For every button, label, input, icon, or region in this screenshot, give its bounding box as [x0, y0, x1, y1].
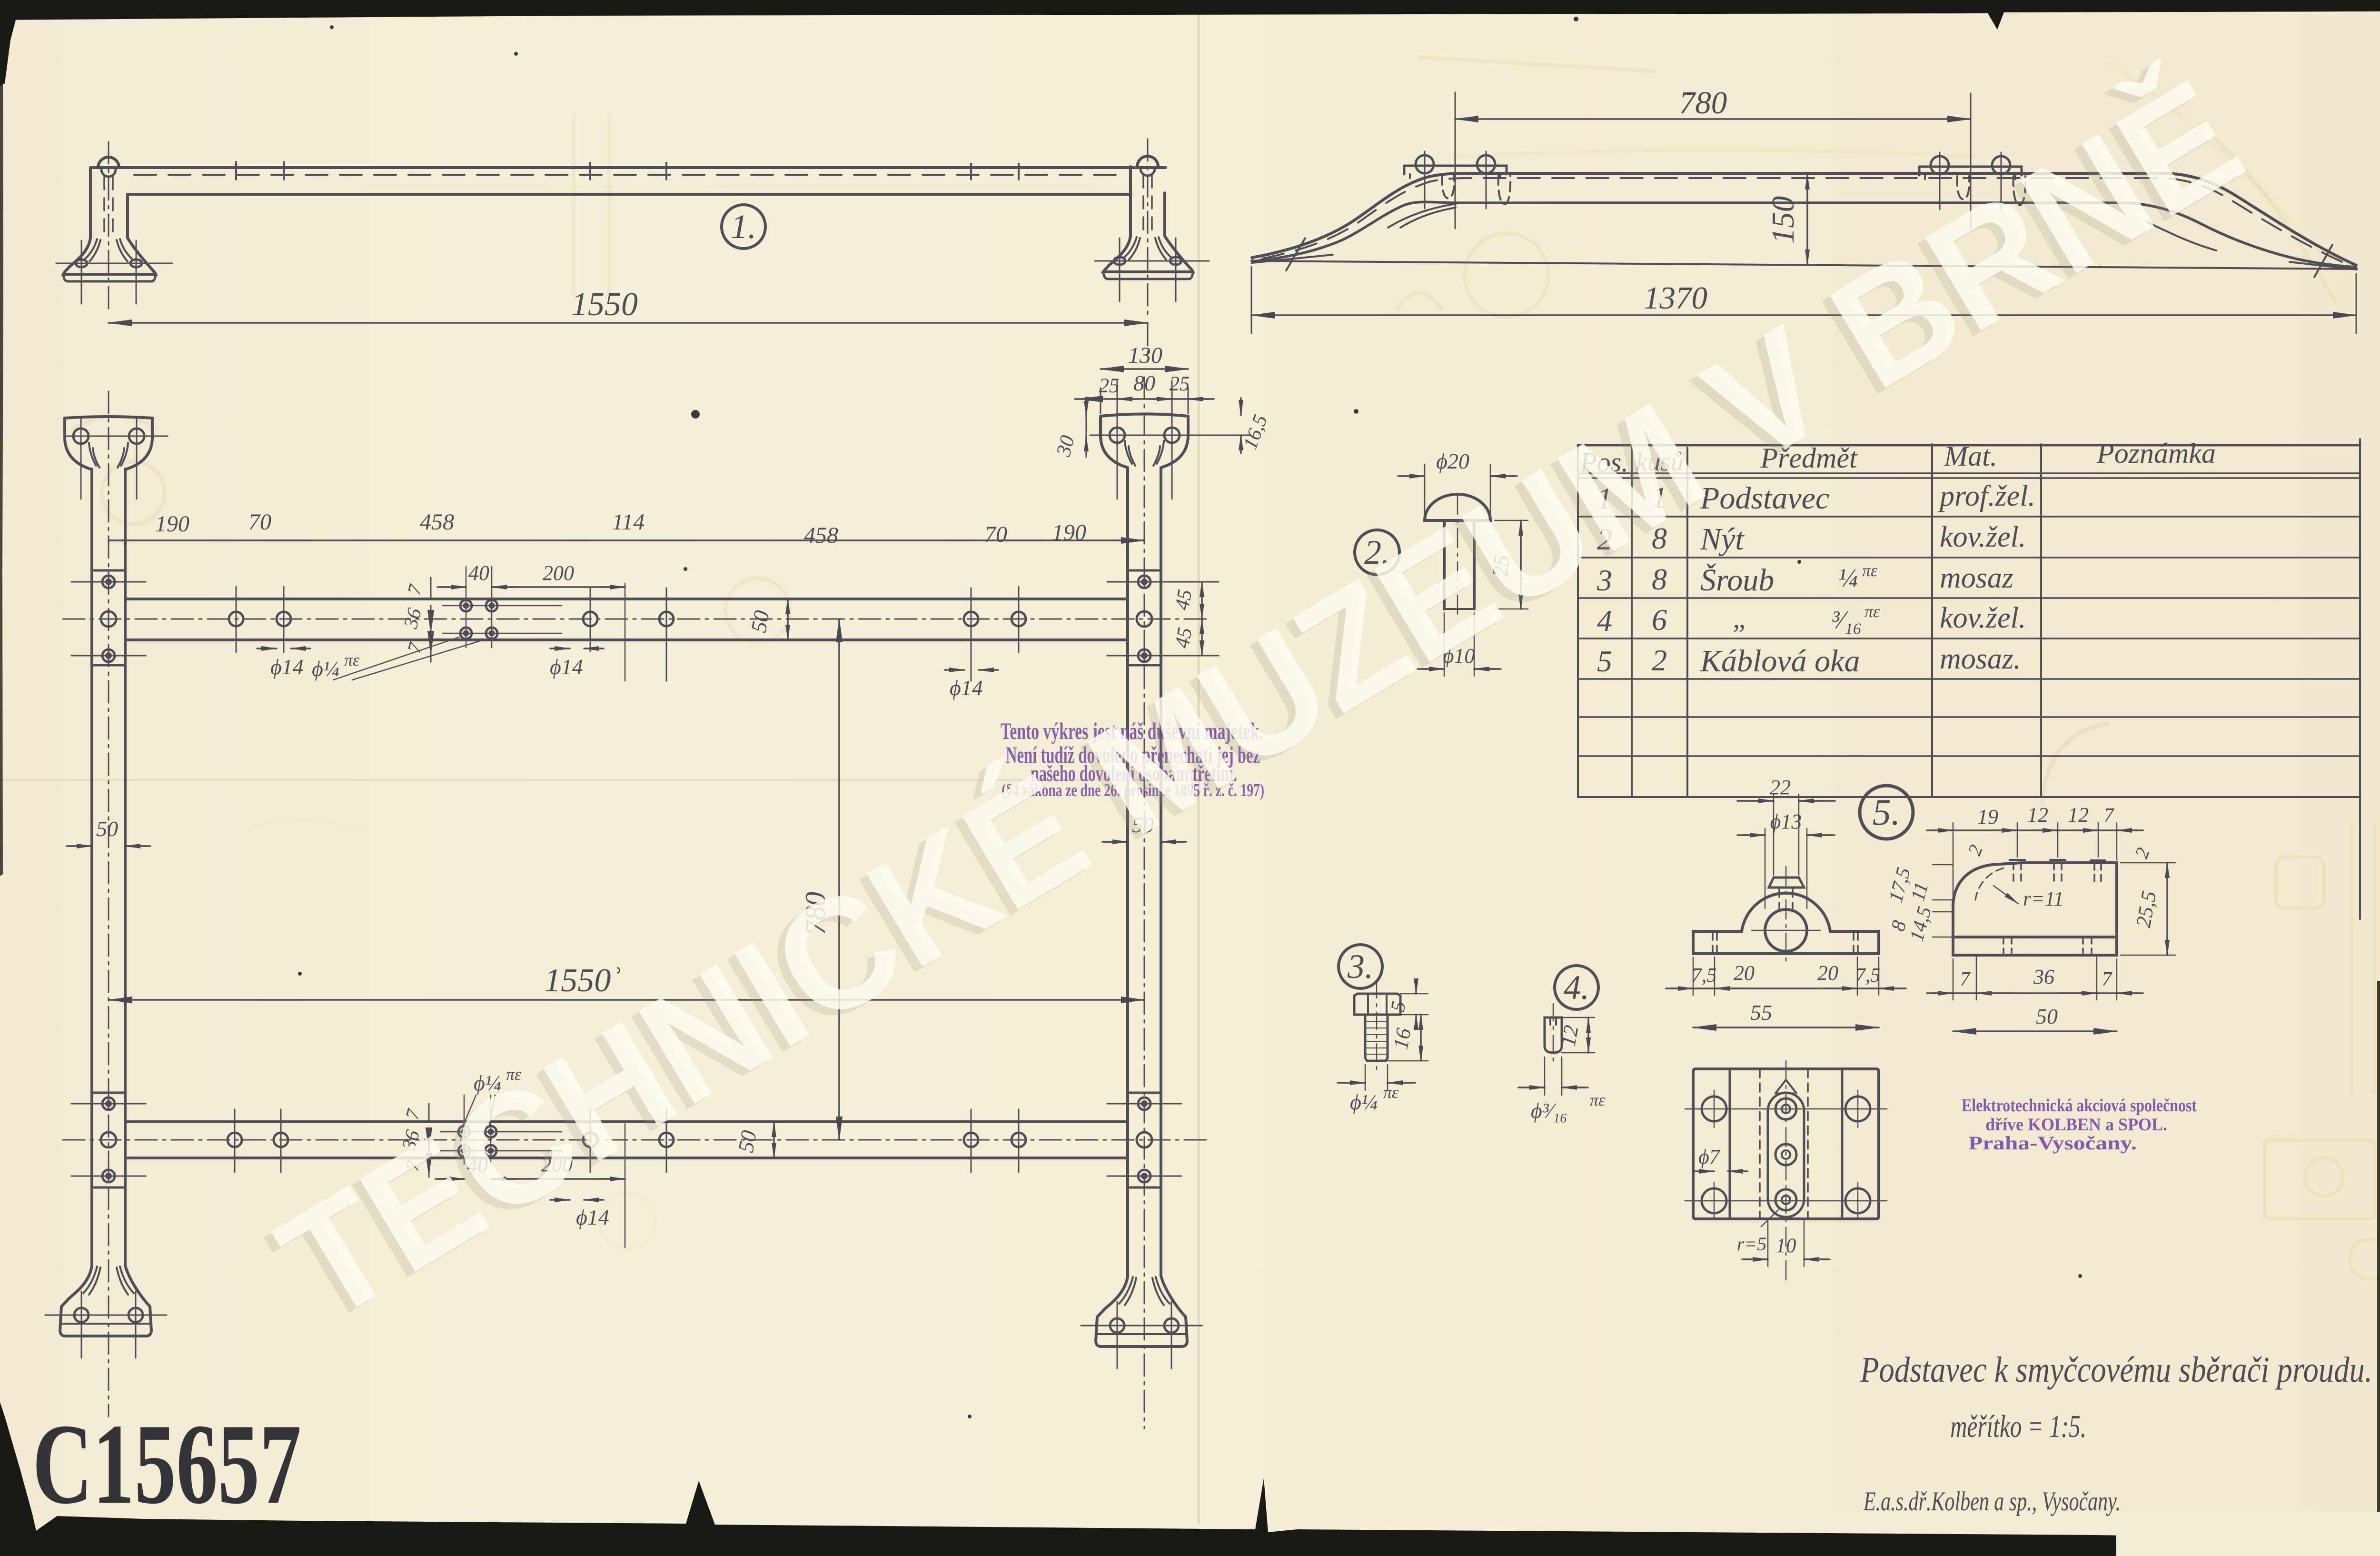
svg-text:7: 7 [2104, 805, 2115, 827]
svg-text:150: 150 [1765, 196, 1801, 244]
svg-text:1550: 1550 [571, 286, 638, 323]
svg-text:780: 780 [1679, 85, 1727, 120]
svg-text:C15657: C15657 [32, 1400, 301, 1528]
svg-text:190: 190 [155, 511, 189, 537]
svg-text:3.: 3. [1347, 948, 1373, 986]
svg-text:70: 70 [984, 522, 1007, 547]
svg-text:200: 200 [543, 561, 574, 585]
svg-text:20: 20 [1734, 961, 1755, 985]
svg-text:50: 50 [746, 608, 774, 634]
svg-text:prof.žel.: prof.žel. [1938, 480, 2035, 512]
svg-text:kov.žel.: kov.žel. [1940, 521, 2026, 553]
svg-text:55: 55 [1750, 1000, 1772, 1025]
svg-text:Podstavec k smyčcovému sběrači: Podstavec k smyčcovému sběrači proudu. [1860, 1350, 2372, 1390]
svg-text:Elektrotechnická akciová spole: Elektrotechnická akciová společnost [1962, 1096, 2197, 1116]
svg-text:12: 12 [2027, 803, 2048, 827]
svg-text:1.: 1. [731, 208, 756, 246]
svg-text:12: 12 [1557, 1024, 1583, 1048]
svg-text:80: 80 [1133, 371, 1155, 395]
svg-text:190: 190 [1052, 520, 1086, 545]
svg-text:70: 70 [248, 509, 271, 535]
svg-text:10: 10 [1776, 1235, 1796, 1257]
svg-text:ϕ13: ϕ13 [1770, 810, 1802, 833]
svg-text:ϕ14: ϕ14 [270, 655, 304, 679]
svg-text:114: 114 [612, 509, 645, 535]
svg-text:22: 22 [1770, 776, 1791, 799]
svg-text:ϕ14: ϕ14 [950, 676, 983, 700]
svg-text:ϕ14: ϕ14 [550, 655, 583, 679]
svg-text:7,5: 7,5 [1692, 965, 1717, 987]
svg-text:45: 45 [1171, 588, 1197, 612]
svg-text:458: 458 [804, 523, 838, 548]
svg-text:měřítko = 1:5.: měřítko = 1:5. [1950, 1409, 2086, 1444]
svg-text:130: 130 [1128, 343, 1162, 368]
svg-text:ϕ7: ϕ7 [1698, 1145, 1721, 1168]
svg-text:ϕ20: ϕ20 [1436, 449, 1469, 473]
svg-text:dříve KOLBEN a SPOL.: dříve KOLBEN a SPOL. [1985, 1115, 2167, 1135]
svg-text:Káblová oka: Káblová oka [1700, 644, 1860, 678]
svg-text:7,5: 7,5 [1855, 965, 1881, 987]
svg-text:36: 36 [2033, 965, 2054, 988]
svg-text:458: 458 [420, 509, 454, 535]
svg-text:4.: 4. [1564, 968, 1589, 1007]
svg-text:50: 50 [734, 1128, 761, 1154]
svg-text:ϕ³⁄₁₆: ϕ³⁄₁₆ [1531, 1098, 1567, 1123]
svg-text:πε: πε [1864, 602, 1880, 621]
svg-text:¼: ¼ [1838, 563, 1858, 592]
svg-text:40: 40 [468, 561, 489, 585]
svg-text:20: 20 [1817, 961, 1838, 985]
svg-text:πε: πε [344, 650, 360, 669]
svg-text:25: 25 [1170, 373, 1190, 395]
svg-text:ϕ¼: ϕ¼ [1350, 1090, 1378, 1114]
svg-text:1370: 1370 [1644, 280, 1707, 316]
svg-text:kov.žel.: kov.žel. [1940, 602, 2026, 634]
svg-text:5: 5 [1597, 644, 1612, 678]
svg-text:25: 25 [1099, 375, 1120, 397]
svg-text:r=11: r=11 [2023, 888, 2064, 910]
svg-text:³⁄₁₆: ³⁄₁₆ [1832, 605, 1862, 634]
svg-text:Šroub: Šroub [1700, 563, 1774, 598]
svg-text:„: „ [1733, 602, 1748, 634]
svg-text:mosaz.: mosaz. [1940, 643, 2021, 675]
svg-text:7: 7 [1960, 968, 1971, 990]
svg-text:πε: πε [1383, 1083, 1399, 1102]
svg-text:πε: πε [1590, 1090, 1606, 1109]
svg-text:7: 7 [2102, 968, 2113, 990]
svg-text:19: 19 [1977, 805, 1998, 828]
svg-text:Poznámka: Poznámka [2096, 438, 2216, 469]
svg-text:4: 4 [1597, 604, 1612, 638]
svg-text:r=5: r=5 [1737, 1233, 1767, 1255]
svg-text:6: 6 [1652, 603, 1667, 637]
svg-text:2: 2 [1652, 643, 1667, 677]
svg-text:Mat.: Mat. [1944, 440, 1997, 472]
svg-text:12: 12 [2068, 803, 2089, 827]
svg-text:Praha-Vysočany.: Praha-Vysočany. [1968, 1132, 2137, 1154]
svg-text:mosaz: mosaz [1940, 562, 2013, 594]
svg-text:E.a.s.dř.Kolben a sp., Vysočan: E.a.s.dř.Kolben a sp., Vysočany. [1863, 1486, 2121, 1516]
svg-text:50: 50 [2036, 1004, 2058, 1028]
svg-text:ϕ¼: ϕ¼ [312, 657, 339, 681]
svg-text:8: 8 [1652, 562, 1667, 596]
svg-text:50: 50 [96, 817, 118, 841]
svg-text:πε: πε [1862, 561, 1878, 580]
svg-text:5.: 5. [1873, 791, 1901, 833]
svg-text:16: 16 [1389, 1027, 1416, 1051]
